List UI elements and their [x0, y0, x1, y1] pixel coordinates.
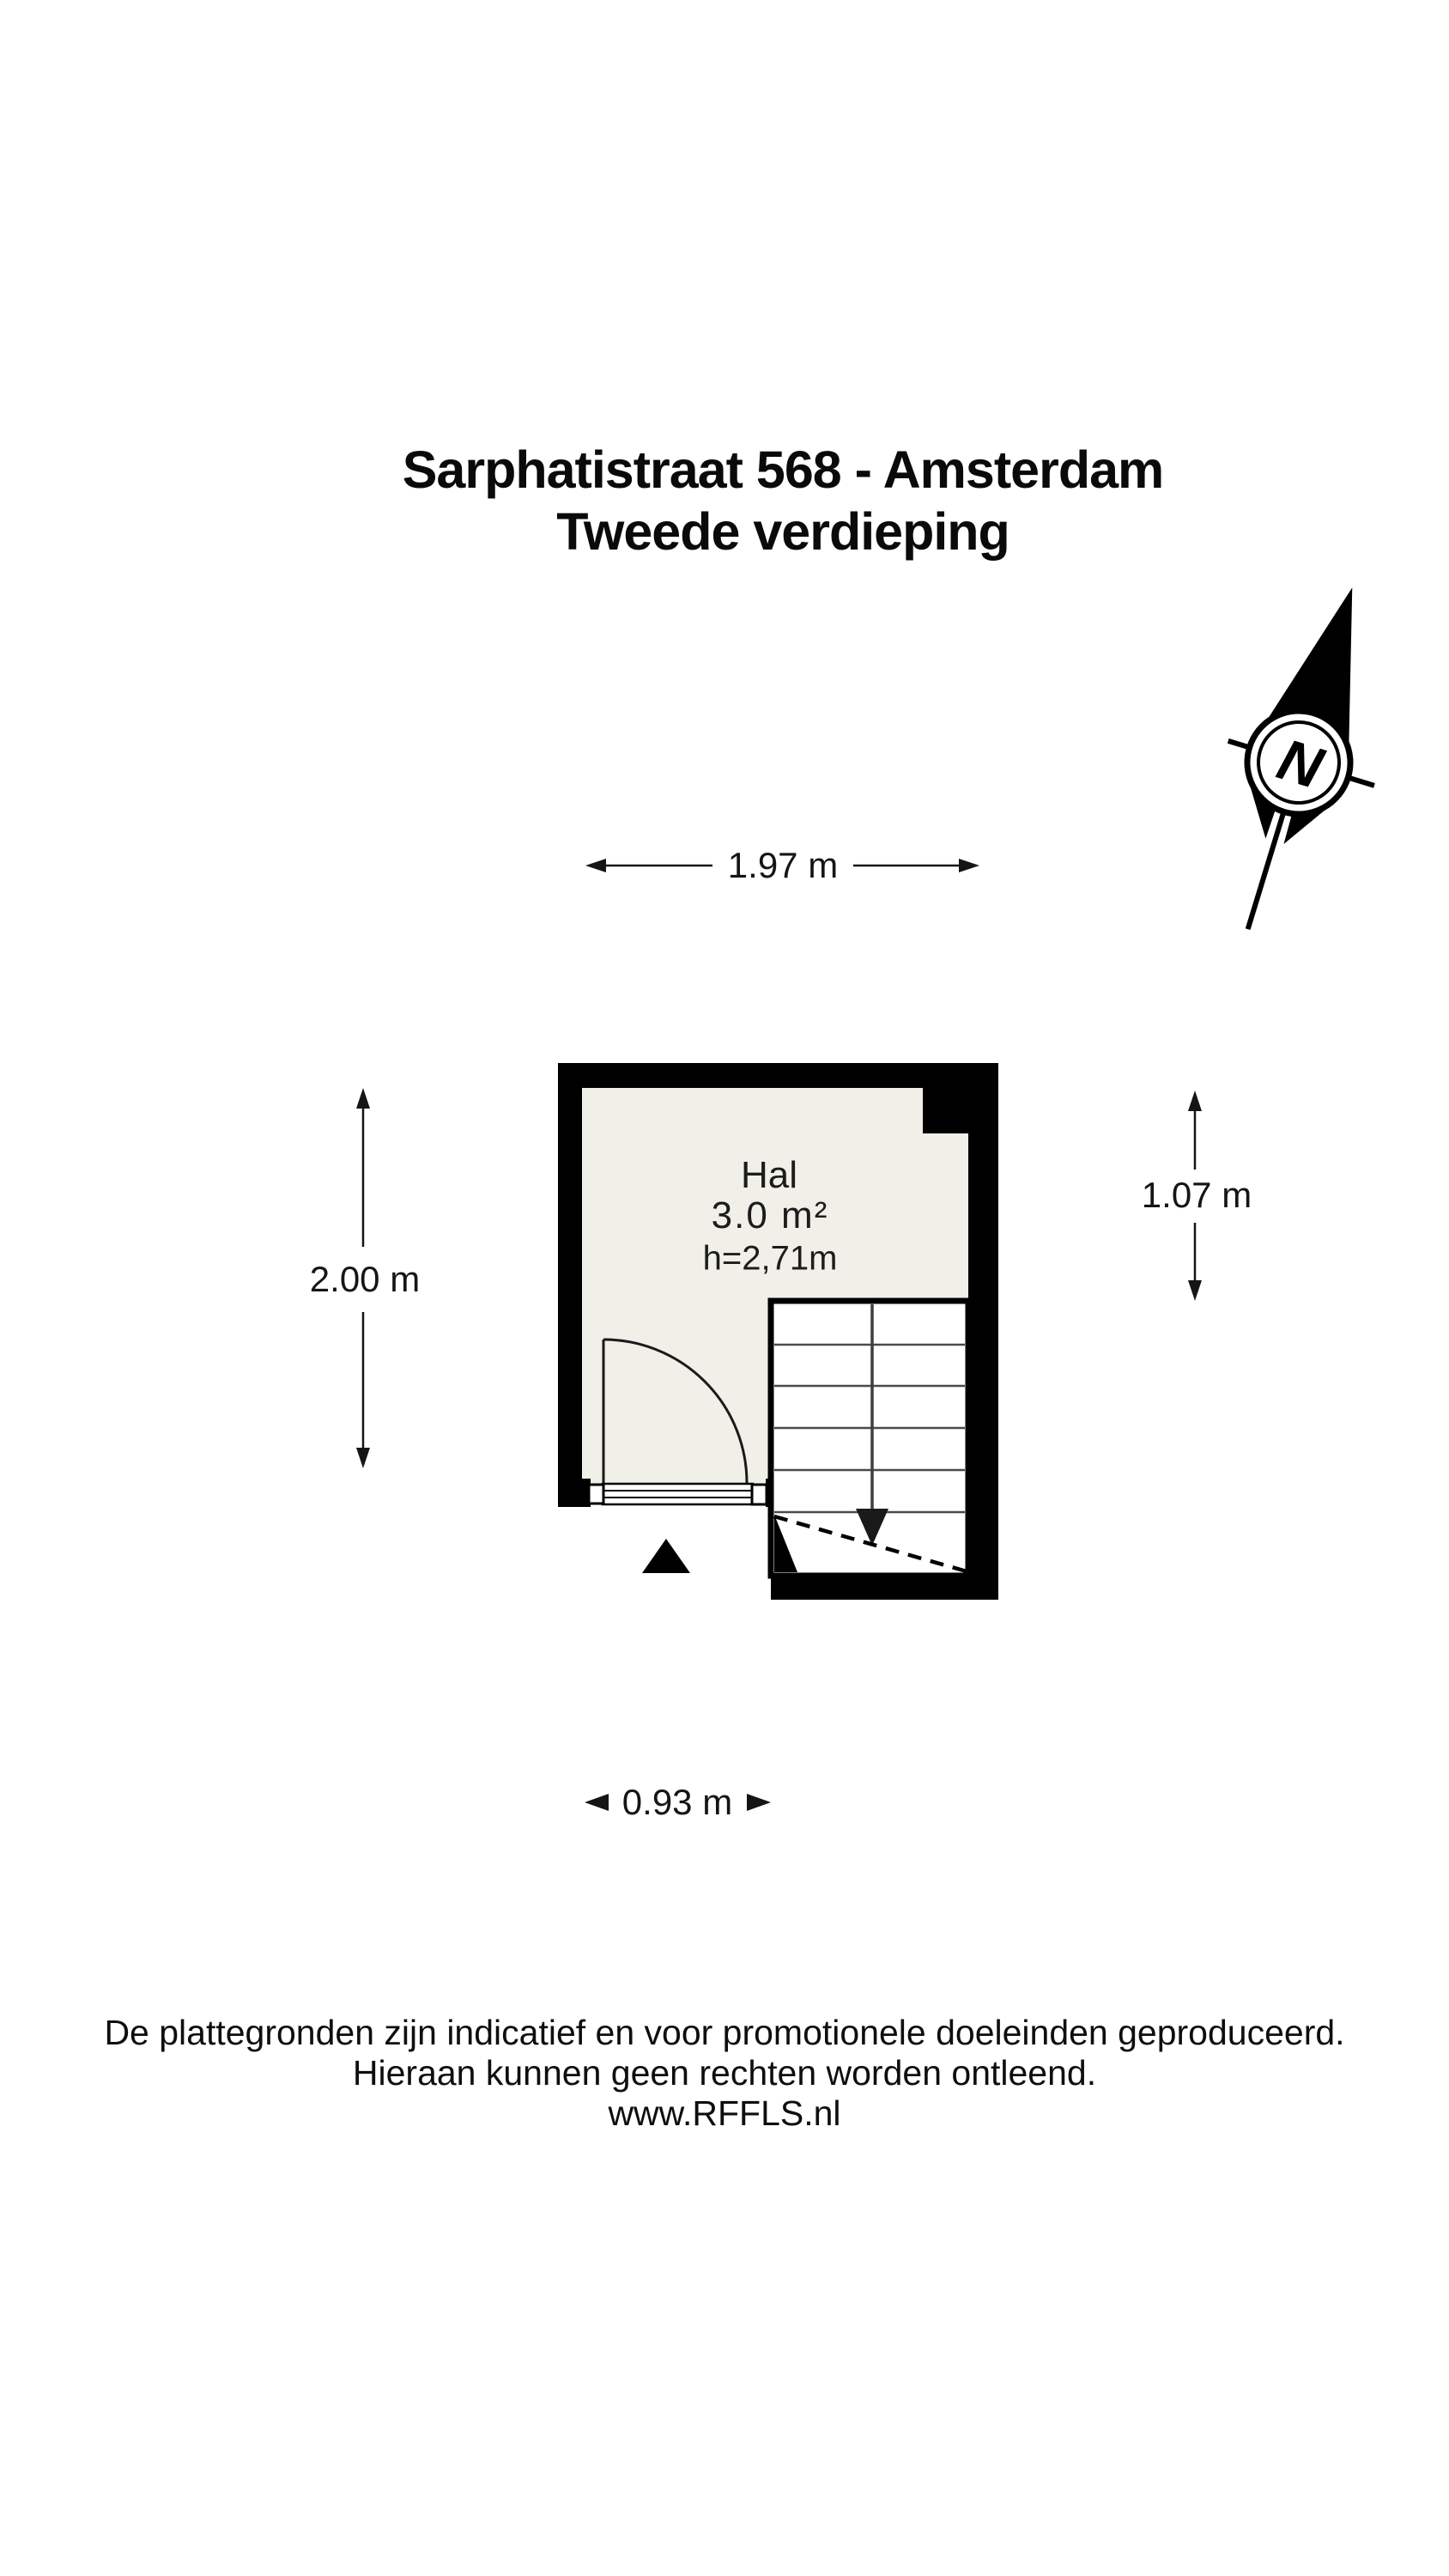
room-area-label: 3.0 m² — [712, 1194, 829, 1237]
disclaimer-line-2: Hieraan kunnen geen rechten worden ontle… — [0, 2053, 1449, 2093]
door-jamb-left — [589, 1485, 603, 1504]
dimension-bottom-label: 0.93 m — [617, 1782, 737, 1823]
room-ceiling-height-label: h=2,71m — [703, 1240, 838, 1279]
floor-plan-page: Sarphatistraat 568 - Amsterdam Tweede ve… — [0, 0, 1449, 2576]
floor-plan-drawing: N — [0, 0, 1449, 2576]
stairs — [771, 1301, 968, 1576]
right-wall — [968, 1133, 998, 1600]
door-jamb-right — [752, 1485, 767, 1504]
room-name-label: Hal — [741, 1154, 797, 1197]
door-sill — [603, 1484, 753, 1504]
left-wall — [558, 1088, 582, 1507]
disclaimer-line-1: De plattegronden zijn indicatief en voor… — [0, 2013, 1449, 2053]
disclaimer-website: www.RFFLS.nl — [0, 2093, 1449, 2134]
north-arrow: N — [1177, 566, 1428, 952]
entrance-arrow — [642, 1539, 690, 1573]
top-wall — [558, 1063, 998, 1088]
dimension-right-label: 1.07 m — [1137, 1175, 1257, 1216]
top-right-notch-wall — [923, 1088, 998, 1133]
dimension-top-label: 1.97 m — [723, 845, 843, 886]
disclaimer-footer: De plattegronden zijn indicatief en voor… — [0, 2013, 1449, 2134]
dimension-left-label: 2.00 m — [305, 1259, 425, 1300]
bottom-wall — [771, 1576, 998, 1600]
